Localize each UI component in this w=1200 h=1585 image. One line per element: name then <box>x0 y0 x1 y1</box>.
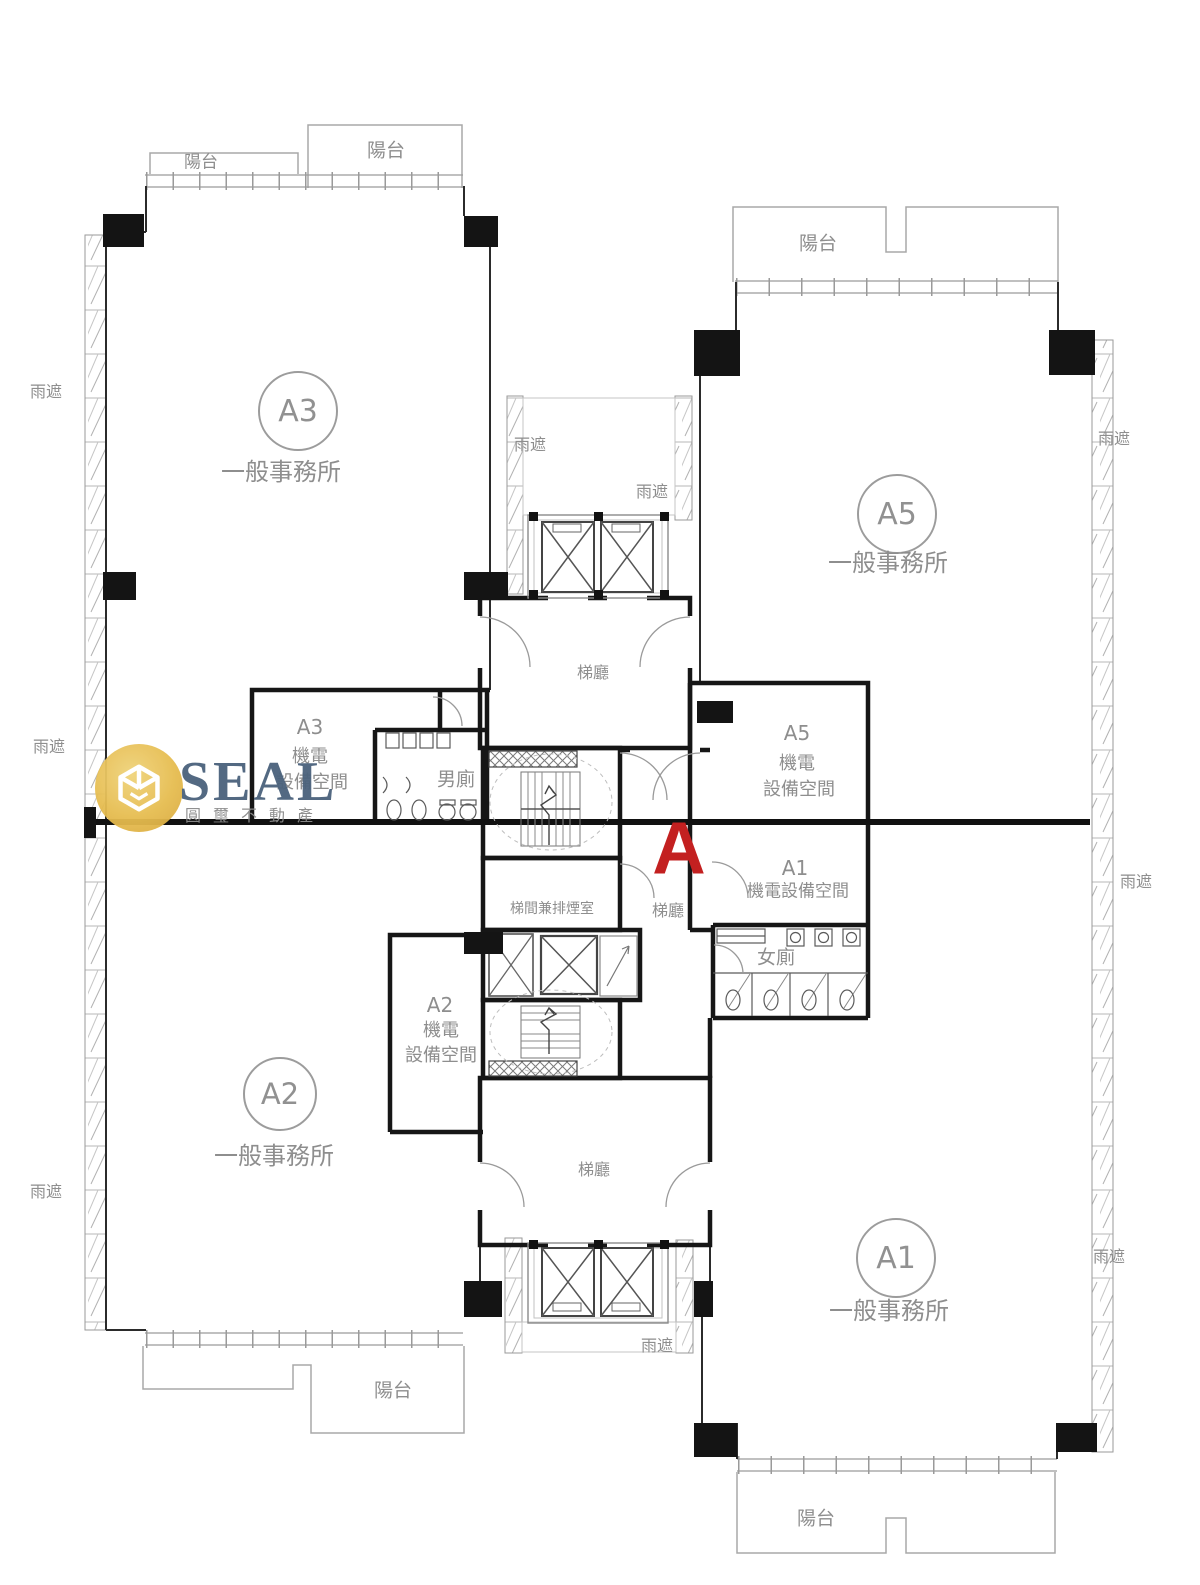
elevator-bank-top <box>528 512 669 599</box>
seal-company-text: 圓璽不動產 <box>185 802 325 826</box>
elevator-hall-top: 梯廳 <box>577 665 609 681</box>
cube-icon <box>111 760 167 816</box>
mech-a1-id: A1 <box>782 858 808 878</box>
rain-shield-strips <box>85 235 1113 1452</box>
unit-a3-badge: A3 <box>258 371 338 451</box>
elevator-hall-bottom: 梯廳 <box>578 1162 610 1178</box>
zone-a-label: A <box>652 806 705 891</box>
unit-a1-id: A1 <box>876 1241 916 1276</box>
rain-shield-label-core-top-right: 雨遮 <box>636 484 668 500</box>
womens-toilet-fixtures <box>713 929 868 1016</box>
unit-a2-badge: A2 <box>243 1057 317 1131</box>
unit-a1-type: 一般事務所 <box>829 1299 949 1323</box>
mech-a2-id: A2 <box>427 995 453 1015</box>
mech-a5-line1: 機電 <box>779 755 815 773</box>
unit-a3-type: 一般事務所 <box>221 460 341 484</box>
elevator-bank-bottom <box>528 1240 669 1323</box>
seal-watermark: SEAL 圓璽不動產 <box>95 742 415 834</box>
core-walls <box>252 598 868 1245</box>
mech-a5-id: A5 <box>784 723 810 743</box>
balcony-label-top-right: 陽台 <box>799 235 837 254</box>
unit-a5-badge: A5 <box>857 474 937 554</box>
unit-a2-id: A2 <box>261 1077 299 1111</box>
unit-a1-badge: A1 <box>856 1218 936 1298</box>
mech-a2-line2: 設備空間 <box>405 1047 477 1065</box>
womens-toilet-label: 女廁 <box>757 949 795 968</box>
mech-a2-line1: 機電 <box>423 1022 459 1040</box>
stair-smoke-room-label: 梯間兼排煙室 <box>510 902 594 916</box>
rain-shield-label-right-bottom: 雨遮 <box>1093 1249 1125 1265</box>
rain-shield-label-left-top: 雨遮 <box>30 384 62 400</box>
stairs-lower <box>489 990 612 1076</box>
mech-a1-line1: 機電設備空間 <box>747 884 849 901</box>
unit-a5-id: A5 <box>877 497 917 532</box>
seal-logo-icon <box>95 744 183 832</box>
balcony-label-top-left: 陽台 <box>367 142 405 161</box>
rain-shield-label-bottom-center: 雨遮 <box>641 1338 673 1354</box>
rain-shield-label-right-top: 雨遮 <box>1098 431 1130 447</box>
rain-shield-label-core-top-left: 雨遮 <box>514 437 546 453</box>
balcony-label-bottom-right: 陽台 <box>797 1510 835 1529</box>
stairs-upper <box>489 751 612 850</box>
floorplan-page: 陽台 陽台 陽台 陽台 陽台 雨遮 雨遮 雨遮 雨遮 雨遮 雨遮 雨遮 雨遮 雨… <box>0 0 1200 1585</box>
rain-shield-label-left-mid: 雨遮 <box>33 739 65 755</box>
unit-a2-type: 一般事務所 <box>214 1144 334 1168</box>
rain-shield-label-left-bottom: 雨遮 <box>30 1184 62 1200</box>
balcony-label-top-left-small: 陽台 <box>184 155 218 172</box>
elevator-hall-mid: 梯廳 <box>652 903 684 919</box>
mens-toilet-label: 男廁 <box>437 771 475 790</box>
mech-a3-id: A3 <box>297 717 323 737</box>
unit-a3-id: A3 <box>278 394 318 429</box>
unit-a5-type: 一般事務所 <box>828 551 948 575</box>
balcony-label-bottom-left: 陽台 <box>374 1382 412 1401</box>
mech-a5-line2: 設備空間 <box>763 781 835 799</box>
elevator-mid <box>489 934 637 996</box>
door-gaps <box>477 593 713 1250</box>
rain-shield-label-right-mid: 雨遮 <box>1120 874 1152 890</box>
